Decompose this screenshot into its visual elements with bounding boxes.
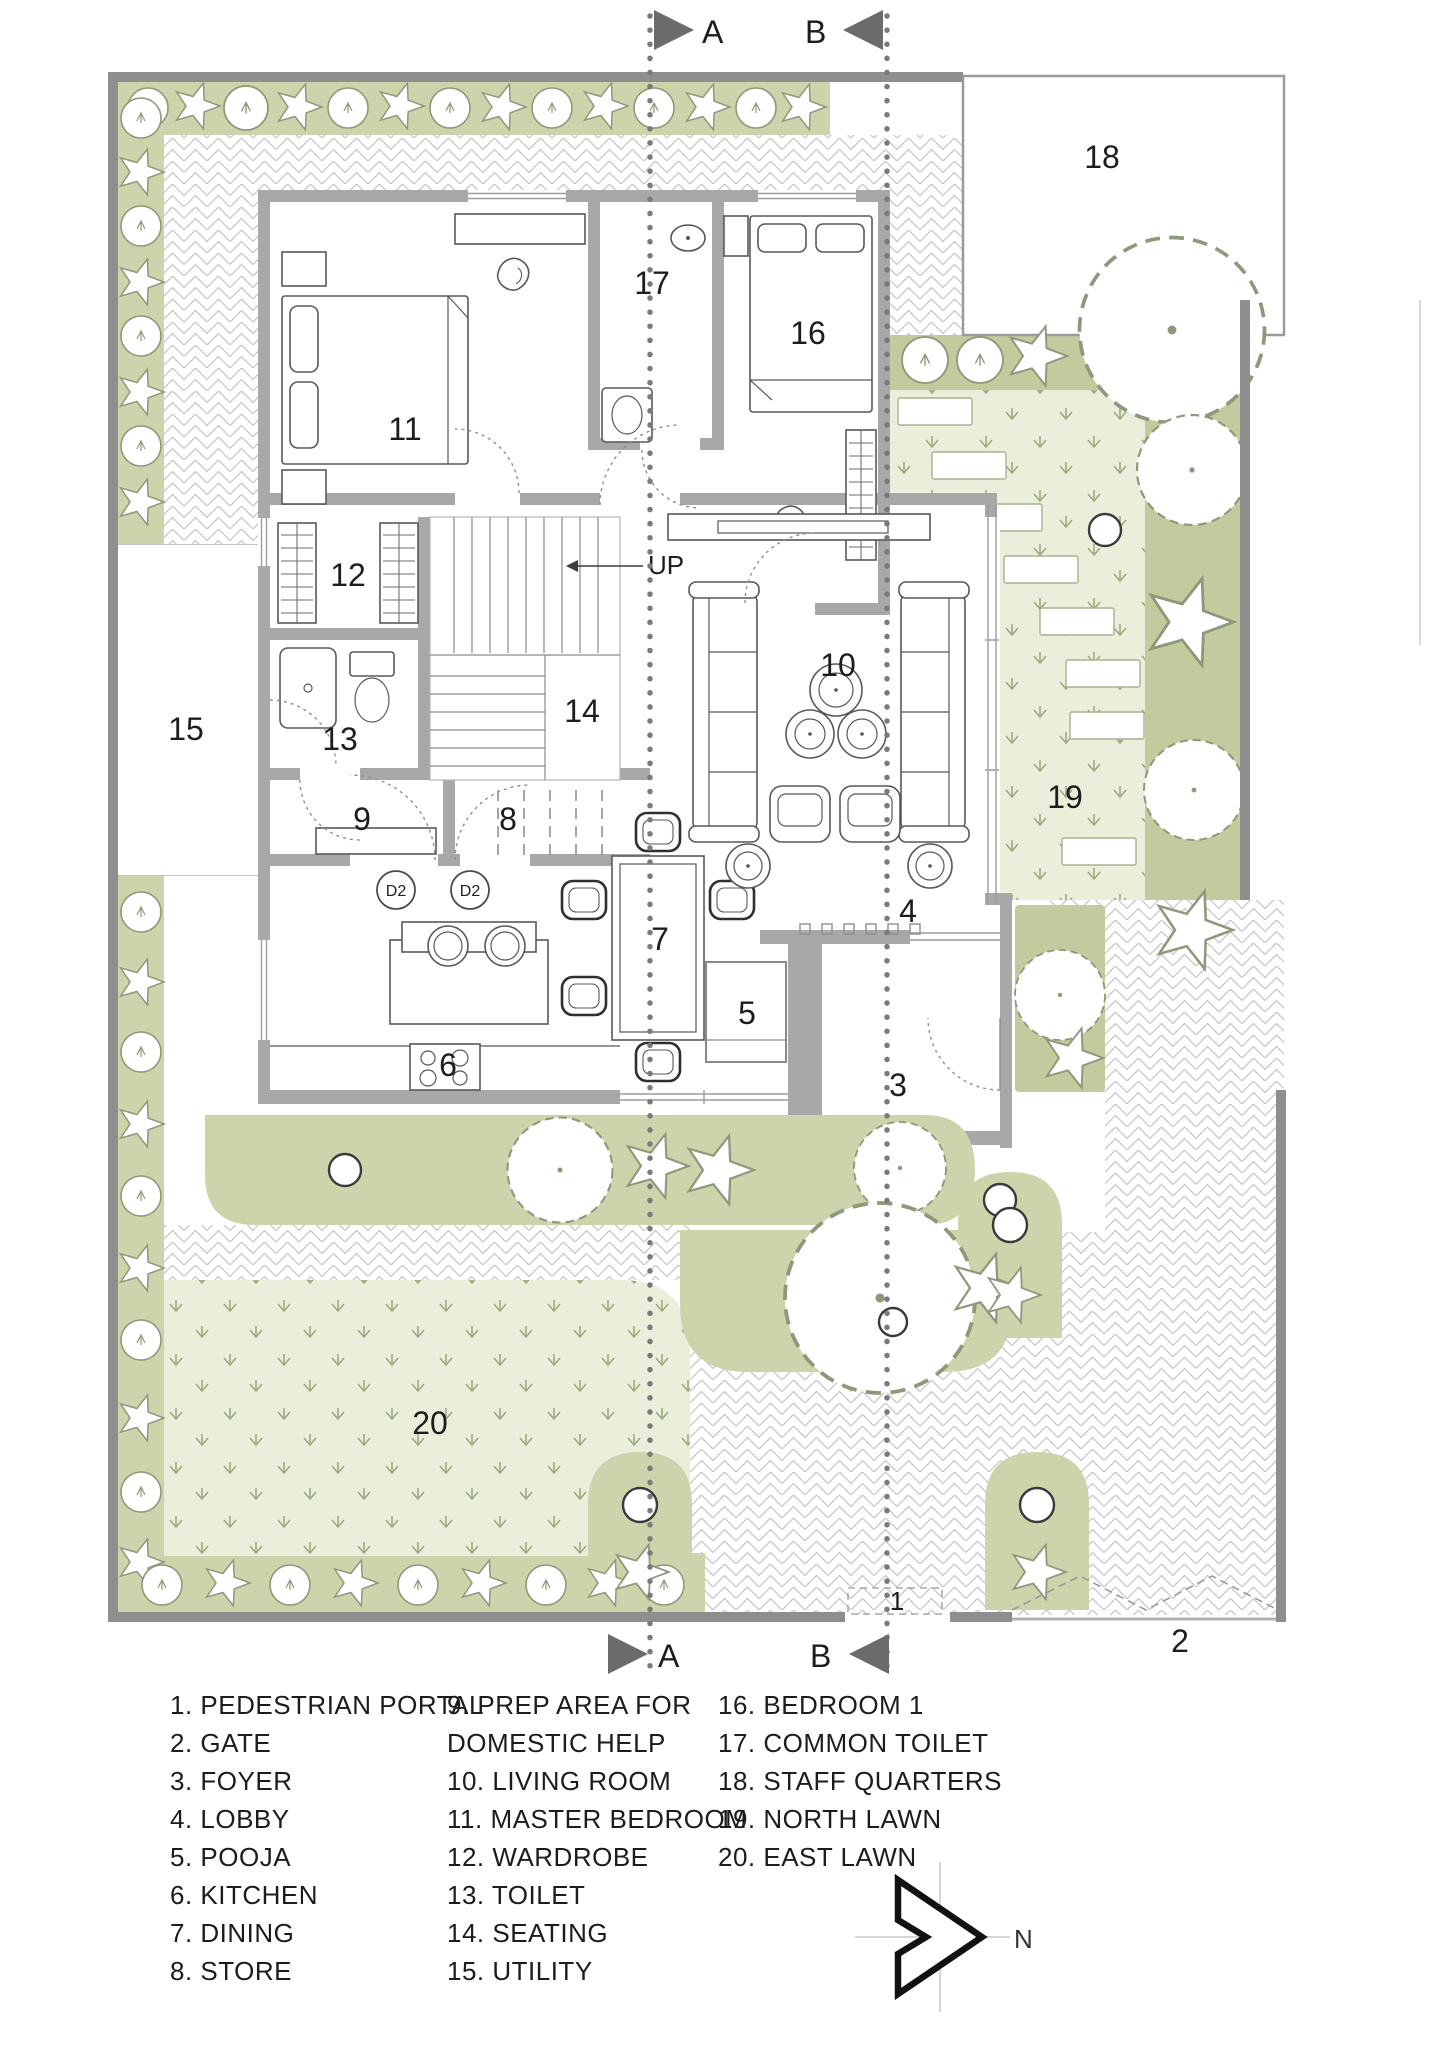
door-tag-d2: D2: [460, 883, 481, 900]
armchair: [770, 786, 830, 842]
room-label-19: 19: [1047, 779, 1083, 815]
room-label-18: 18: [1084, 139, 1120, 175]
room-label-5: 5: [738, 995, 756, 1031]
room-label-20: 20: [412, 1405, 448, 1441]
pillow: [290, 306, 318, 372]
legend-item: 13. TOILET: [447, 1880, 585, 1910]
legend-item: 20. EAST LAWN: [718, 1842, 917, 1872]
nightstand: [724, 216, 748, 256]
nightstand: [282, 252, 326, 286]
room-label-12: 12: [330, 557, 366, 593]
legend-item: 5. POOJA: [170, 1842, 291, 1872]
room-label-7: 7: [651, 921, 669, 957]
north-label: N: [1014, 1924, 1033, 1954]
legend-item: 7. DINING: [170, 1918, 294, 1948]
legend-item: 12. WARDROBE: [447, 1842, 649, 1872]
site-plan-drawing: UP: [0, 0, 1448, 2048]
room-label-9: 9: [353, 801, 371, 837]
section-label-a: A: [702, 14, 724, 50]
room-label-10: 10: [820, 647, 856, 683]
washbasin: [280, 648, 336, 728]
pillow: [758, 224, 806, 252]
prep-counter: [316, 828, 436, 854]
section-label-b: B: [805, 14, 826, 50]
legend-item: 9. PREP AREA FOR: [447, 1690, 692, 1720]
room-label-13: 13: [322, 721, 358, 757]
room-label-3: 3: [889, 1067, 907, 1103]
utility-area: [118, 545, 258, 875]
legend-item: 18. STAFF QUARTERS: [718, 1766, 1002, 1796]
courtyard-tree: [785, 1203, 975, 1393]
legend-item: 6. KITCHEN: [170, 1880, 318, 1910]
room-label-4: 4: [899, 893, 917, 929]
room-label-6: 6: [439, 1047, 457, 1083]
section-label-b: B: [810, 1638, 831, 1674]
sofa: [899, 582, 969, 842]
legend-item: 16. BEDROOM 1: [718, 1690, 924, 1720]
room-label-1: 1: [890, 1586, 904, 1616]
room-label-2: 2: [1171, 1623, 1189, 1659]
sofa: [689, 582, 759, 842]
garden-lamp: [1089, 514, 1121, 546]
garden-lamp: [329, 1154, 361, 1186]
wc-tank: [350, 652, 394, 676]
floor-plan-page: UP: [0, 0, 1448, 2048]
legend-item: 3. FOYER: [170, 1766, 292, 1796]
legend-item: DOMESTIC HELP: [447, 1728, 666, 1758]
room-label-8: 8: [499, 801, 517, 837]
desk: [455, 214, 585, 244]
legend-item: 8. STORE: [170, 1956, 292, 1986]
section-label-a: A: [658, 1638, 680, 1674]
door-tag-d2: D2: [386, 883, 407, 900]
legend-item: 2. GATE: [170, 1728, 271, 1758]
room-label-15: 15: [168, 711, 204, 747]
tv-console: [668, 514, 930, 540]
legend-item: 1. PEDESTRIAN PORTAL: [170, 1690, 484, 1720]
room-label-17: 17: [634, 265, 670, 301]
pillow: [816, 224, 864, 252]
up-label: UP: [648, 550, 684, 580]
legend-item: 4. LOBBY: [170, 1804, 290, 1834]
legend-item: 19. NORTH LAWN: [718, 1804, 942, 1834]
armchair: [840, 786, 900, 842]
nightstand: [282, 470, 326, 504]
legend-item: 17. COMMON TOILET: [718, 1728, 988, 1758]
legend-item: 11. MASTER BEDROOM: [447, 1804, 747, 1834]
pillow: [290, 382, 318, 448]
room-label-16: 16: [790, 315, 826, 351]
legend-item: 14. SEATING: [447, 1918, 608, 1948]
room-label-14: 14: [564, 693, 600, 729]
large-tree: [1080, 238, 1265, 423]
legend-item: 15. UTILITY: [447, 1956, 593, 1986]
room-label-11: 11: [388, 411, 421, 447]
legend-item: 10. LIVING ROOM: [447, 1766, 671, 1796]
